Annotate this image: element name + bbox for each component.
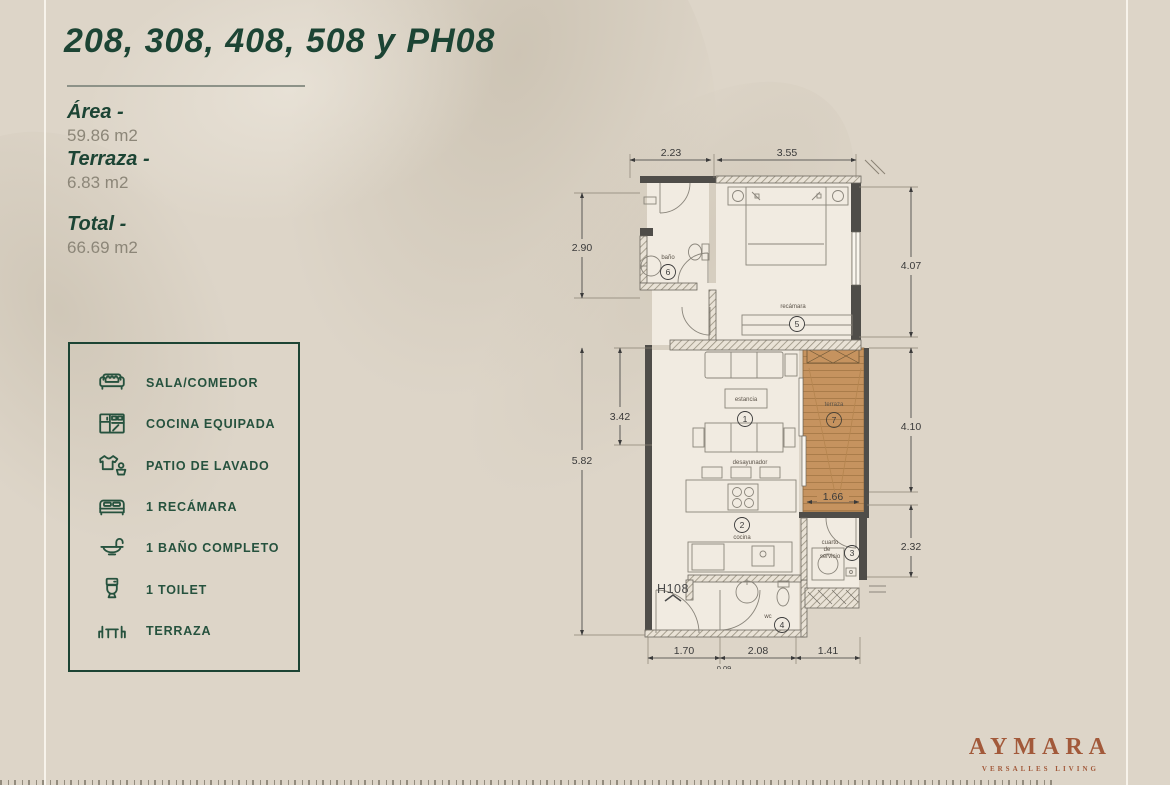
unit-label: H108 — [657, 582, 689, 596]
room-number: 7 — [832, 415, 837, 425]
legend-label: 1 RECÁMARA — [146, 500, 237, 514]
dimension-label: 2.08 — [748, 645, 769, 657]
brand-logo: AYMARA VERSALLES LIVING — [969, 734, 1112, 773]
dimension-label: 2.32 — [901, 541, 922, 553]
stat-value: 6.83 m2 — [67, 171, 150, 194]
area-stats: Área - 59.86 m2 Terraza - 6.83 m2 Total … — [67, 100, 150, 259]
room-label: de — [824, 547, 831, 553]
legend-label: COCINA EQUIPADA — [146, 417, 275, 431]
brochure-page: 208, 308, 408, 508 y PH08 Área - 59.86 m… — [0, 0, 1170, 785]
legend-item: 1 BAÑO COMPLETO — [94, 533, 298, 563]
dimension-label: 1.70 — [674, 645, 695, 657]
room-label: baño — [661, 255, 675, 261]
room-label: cocina — [733, 535, 751, 541]
floor-plan: 2.23 3.55 2.90 3.42 5.82 4.07 4.10 2.32 … — [556, 140, 956, 680]
legend-item: PATIO DE LAVADO — [94, 451, 298, 481]
legend-label: SALA/COMEDOR — [146, 376, 258, 390]
dimension-label: 5.82 — [572, 455, 593, 467]
vertical-divider-line — [44, 0, 46, 785]
dimension-label: 1.41 — [818, 645, 839, 657]
brand-name: AYMARA — [969, 734, 1112, 761]
legend-label: TERRAZA — [146, 624, 211, 638]
stat-label: Área - — [67, 100, 150, 124]
room-number: 3 — [850, 548, 855, 558]
room-label: cuarto — [822, 540, 839, 546]
room-number: 5 — [795, 319, 800, 329]
legend-item: SALA/COMEDOR — [94, 368, 298, 398]
room-number: 1 — [743, 414, 748, 424]
amenities-legend-box: SALA/COMEDOR COCINA EQUIPADA PATIO DE LA… — [68, 342, 300, 672]
brand-tagline: VERSALLES LIVING — [969, 765, 1112, 773]
vertical-divider-line — [1126, 0, 1128, 785]
room-label: servicio — [820, 554, 841, 560]
bed-icon — [94, 492, 130, 522]
title-underline — [67, 85, 305, 87]
stat-value: 59.86 m2 — [67, 124, 150, 147]
dimension-label: 1.66 — [823, 491, 844, 503]
room-label: terraza — [825, 402, 844, 408]
room-label: estancia — [735, 397, 758, 403]
legend-item: 1 TOILET — [94, 575, 298, 605]
laundry-icon — [94, 451, 130, 481]
dimension-label: 4.10 — [901, 421, 922, 433]
dimension-label: 3.42 — [610, 411, 631, 423]
legend-item: TERRAZA — [94, 616, 298, 646]
room-label: desayunador — [733, 460, 768, 466]
page-title: 208, 308, 408, 508 y PH08 — [64, 22, 495, 61]
dimension-label: 2.90 — [572, 242, 593, 254]
legend-label: 1 BAÑO COMPLETO — [146, 541, 279, 555]
room-number: 4 — [780, 620, 785, 630]
legend-label: 1 TOILET — [146, 583, 207, 597]
legend-item: COCINA EQUIPADA — [94, 409, 298, 439]
bath-icon — [94, 533, 130, 563]
stat-label: Total - — [67, 212, 150, 236]
stat-label: Terraza - — [67, 147, 150, 171]
room-label: wc — [763, 614, 771, 620]
terrace-icon — [94, 616, 130, 646]
kitchen-icon — [94, 409, 130, 439]
dimension-label: 3.55 — [777, 147, 798, 159]
room-label: recámara — [780, 304, 806, 310]
room-number: 2 — [740, 520, 745, 530]
legend-item: 1 RECÁMARA — [94, 492, 298, 522]
clipped-disclaimer-text — [0, 780, 1055, 785]
room-number: 6 — [666, 267, 671, 277]
stat-value: 66.69 m2 — [67, 236, 150, 259]
section-hatch-marks — [865, 160, 885, 174]
toilet-icon — [94, 575, 130, 605]
dimension-label: 4.07 — [901, 260, 922, 272]
legend-label: PATIO DE LAVADO — [146, 459, 270, 473]
sofa-icon — [94, 368, 130, 398]
dimension-label: 2.23 — [661, 147, 682, 159]
